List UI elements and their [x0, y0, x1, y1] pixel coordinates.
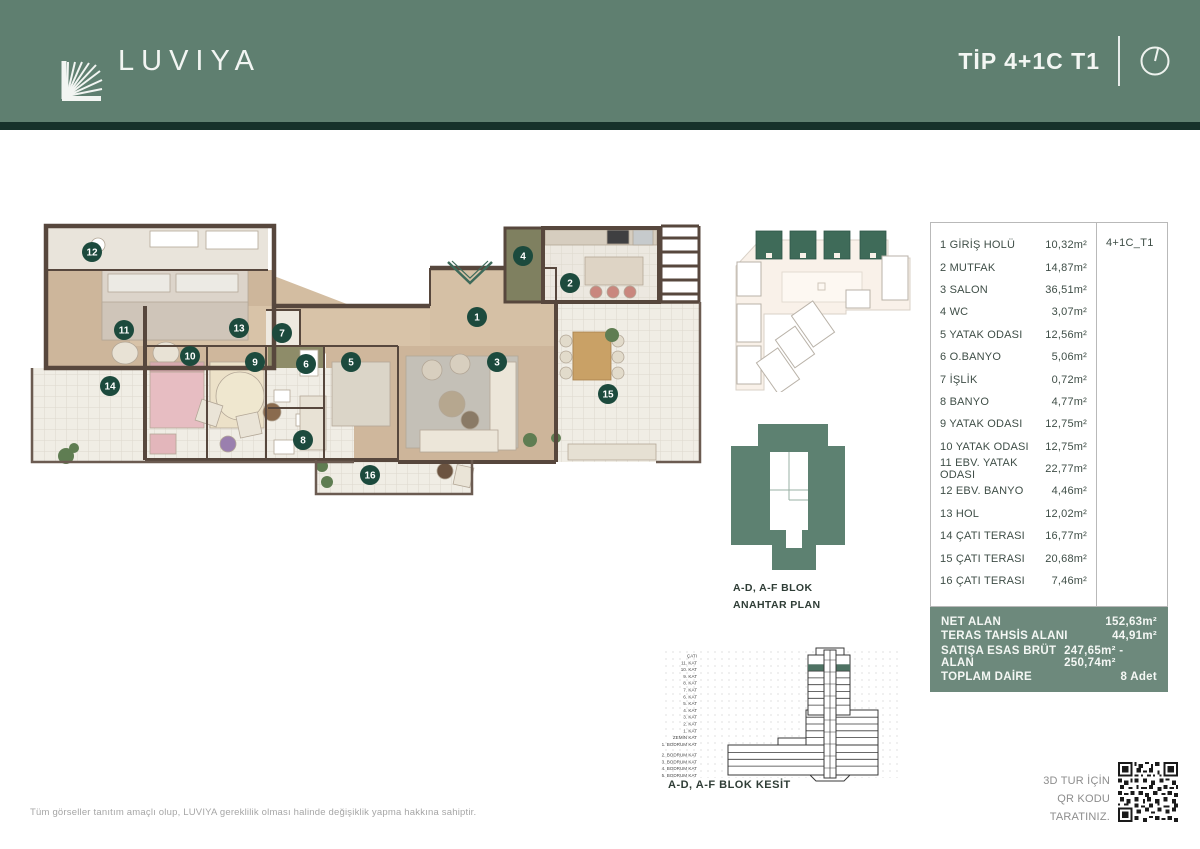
- svg-text:5: 5: [348, 358, 354, 369]
- room-area: 12,56m²: [1045, 329, 1087, 341]
- footer-disclaimer: Tüm görseller tanıtım amaçlı olup, LUVIY…: [30, 807, 476, 818]
- floor-plan-drawing: 1 2 3 4 5 6 7 8 9 10 11 12 13 14 15 16: [18, 198, 708, 518]
- table-row: 10 YATAK ODASI12,75m²: [931, 436, 1096, 458]
- room-label: 1 GİRİŞ HOLÜ: [940, 239, 1015, 251]
- room-area: 4,46m²: [1052, 485, 1087, 497]
- table-row: 11 EBV. YATAK ODASI22,77m²: [931, 458, 1096, 480]
- room-area: 0,72m²: [1052, 374, 1087, 386]
- svg-text:4. KAT: 4. KAT: [683, 708, 697, 713]
- summary-label: NET ALAN: [941, 616, 1001, 628]
- room-area: 4,77m²: [1052, 396, 1087, 408]
- svg-text:4. BODRUM KAT: 4. BODRUM KAT: [662, 766, 698, 771]
- table-row: 1 GİRİŞ HOLÜ10,32m²: [931, 234, 1096, 256]
- svg-text:15: 15: [602, 390, 614, 401]
- room-marker: 11: [114, 320, 134, 340]
- svg-text:8. KAT: 8. KAT: [683, 681, 697, 686]
- room-marker: 2: [560, 273, 580, 293]
- summary-row: TOPLAM DAİRE8 Adet: [941, 671, 1157, 683]
- unit-code: 4+1C_T1: [1097, 223, 1167, 606]
- summary-value: 44,91m²: [1112, 630, 1157, 642]
- table-row: 13 HOL12,02m²: [931, 503, 1096, 525]
- room-label: 6 O.BANYO: [940, 351, 1001, 363]
- room-label: 14 ÇATI TERASI: [940, 530, 1025, 542]
- svg-text:14: 14: [104, 382, 116, 393]
- room-label: 4 WC: [940, 306, 968, 318]
- room-label: 13 HOL: [940, 508, 979, 520]
- room-marker: 12: [82, 242, 102, 262]
- room-area: 20,68m²: [1045, 553, 1087, 565]
- section-caption: A-D, A-F BLOK KESİT: [668, 779, 791, 791]
- svg-text:3. KAT: 3. KAT: [683, 715, 697, 720]
- summary-label: TERAS TAHSİS ALANI: [941, 630, 1068, 642]
- table-row: 8 BANYO4,77m²: [931, 391, 1096, 413]
- room-area: 5,06m²: [1052, 351, 1087, 363]
- room-marker: 16: [360, 465, 380, 485]
- table-row: 2 MUTFAK14,87m²: [931, 256, 1096, 278]
- summary-block: NET ALAN152,63m² TERAS TAHSİS ALANI44,91…: [930, 607, 1168, 692]
- summary-row: TERAS TAHSİS ALANI44,91m²: [941, 630, 1157, 642]
- room-label: 11 EBV. YATAK ODASI: [940, 457, 1045, 481]
- room-marker: 4: [513, 246, 533, 266]
- svg-text:8: 8: [300, 436, 306, 447]
- svg-text:9. KAT: 9. KAT: [683, 674, 697, 679]
- balcony-railing: [661, 226, 699, 302]
- summary-label: SATIŞA ESAS BRÜT ALAN: [941, 645, 1064, 669]
- section-drawing: ÇATI 11. KAT 10. KAT 9. KAT 8. KAT 7. KA…: [655, 643, 905, 795]
- room-area: 3,07m²: [1052, 306, 1087, 318]
- room-marker: 1: [467, 307, 487, 327]
- svg-text:11. KAT: 11. KAT: [681, 660, 697, 665]
- svg-text:2. KAT: 2. KAT: [683, 722, 697, 727]
- room-marker: 15: [598, 384, 618, 404]
- key-plan-caption-line1: A-D, A-F BLOK: [733, 580, 820, 597]
- qr-code: [1118, 762, 1178, 822]
- svg-text:10. KAT: 10. KAT: [681, 667, 697, 672]
- room-marker: 5: [341, 352, 361, 372]
- room-area: 36,51m²: [1045, 284, 1087, 296]
- brand-name: LUVIYA: [118, 0, 261, 122]
- room-marker: 10: [180, 346, 200, 366]
- room-area: 12,75m²: [1045, 418, 1087, 430]
- qr-instruction: 3D TUR İÇİN QR KODU TARATINIZ.: [1000, 772, 1110, 826]
- header-accent-strip: [0, 122, 1200, 130]
- svg-text:9: 9: [252, 358, 258, 369]
- table-row: 7 İŞLİK0,72m²: [931, 368, 1096, 390]
- qr-instruction-line1: 3D TUR İÇİN: [1000, 772, 1110, 790]
- room-label: 16 ÇATI TERASI: [940, 575, 1025, 587]
- table-row: 16 ÇATI TERASI7,46m²: [931, 570, 1096, 592]
- table-row: 5 YATAK ODASI12,56m²: [931, 324, 1096, 346]
- header-divider: [1118, 36, 1120, 86]
- svg-text:3: 3: [494, 358, 500, 369]
- page-title: TİP 4+1C T1: [958, 48, 1100, 75]
- room-label: 9 YATAK ODASI: [940, 418, 1022, 430]
- table-row: 4 WC3,07m²: [931, 301, 1096, 323]
- room-area: 16,77m²: [1045, 530, 1087, 542]
- svg-text:16: 16: [364, 471, 376, 482]
- svg-text:4: 4: [520, 252, 526, 263]
- summary-value: 152,63m²: [1105, 616, 1157, 628]
- room-label: 12 EBV. BANYO: [940, 485, 1024, 497]
- room-label: 3 SALON: [940, 284, 988, 296]
- room-list: 1 GİRİŞ HOLÜ10,32m² 2 MUTFAK14,87m² 3 SA…: [931, 223, 1097, 606]
- room-marker: 6: [296, 354, 316, 374]
- table-row: 9 YATAK ODASI12,75m²: [931, 413, 1096, 435]
- svg-text:1. KAT: 1. KAT: [683, 728, 697, 733]
- room-marker: 14: [100, 376, 120, 396]
- svg-text:10: 10: [184, 352, 196, 363]
- table-row: 15 ÇATI TERASI20,68m²: [931, 547, 1096, 569]
- table-row: 6 O.BANYO5,06m²: [931, 346, 1096, 368]
- room-label: 10 YATAK ODASI: [940, 441, 1029, 453]
- room-label: 8 BANYO: [940, 396, 989, 408]
- room-label: 7 İŞLİK: [940, 374, 977, 386]
- room-label: 2 MUTFAK: [940, 262, 995, 274]
- room-marker: 7: [272, 323, 292, 343]
- room-area: 10,32m²: [1045, 239, 1087, 251]
- svg-text:7. KAT: 7. KAT: [683, 688, 697, 693]
- room-marker: 8: [293, 430, 313, 450]
- svg-text:6: 6: [303, 360, 309, 371]
- svg-text:13: 13: [233, 324, 245, 335]
- table-row: 12 EBV. BANYO4,46m²: [931, 480, 1096, 502]
- summary-label: TOPLAM DAİRE: [941, 671, 1032, 683]
- room-marker: 9: [245, 352, 265, 372]
- svg-text:1: 1: [474, 313, 480, 324]
- summary-row: SATIŞA ESAS BRÜT ALAN247,65m² - 250,74m²: [941, 645, 1157, 669]
- luviya-logo-icon: [56, 56, 104, 104]
- header: LUVIYA TİP 4+1C T1: [0, 0, 1200, 122]
- room-area-table: 1 GİRİŞ HOLÜ10,32m² 2 MUTFAK14,87m² 3 SA…: [930, 222, 1168, 607]
- svg-text:5. KAT: 5. KAT: [683, 701, 697, 706]
- svg-text:1. BODRUM KAT: 1. BODRUM KAT: [662, 742, 698, 747]
- north-indicator-icon: [1138, 44, 1172, 78]
- svg-text:11: 11: [119, 326, 130, 337]
- room-marker: 13: [229, 318, 249, 338]
- summary-value: 8 Adet: [1120, 671, 1157, 683]
- brochure-page: LUVIYA TİP 4+1C T1: [0, 0, 1200, 849]
- svg-text:12: 12: [86, 248, 98, 259]
- svg-text:6. KAT: 6. KAT: [683, 694, 697, 699]
- summary-value: 247,65m² - 250,74m²: [1064, 645, 1157, 669]
- room-area: 7,46m²: [1052, 575, 1087, 587]
- room-area: 12,02m²: [1045, 508, 1087, 520]
- room-marker: 3: [487, 352, 507, 372]
- key-plan-caption: A-D, A-F BLOK ANAHTAR PLAN: [733, 580, 820, 614]
- svg-text:ÇATI: ÇATI: [687, 654, 697, 659]
- room-area: 14,87m²: [1045, 262, 1087, 274]
- svg-text:2: 2: [567, 279, 573, 290]
- svg-text:2. BODRUM KAT: 2. BODRUM KAT: [662, 753, 698, 758]
- room-label: 5 YATAK ODASI: [940, 329, 1022, 341]
- table-row: 3 SALON36,51m²: [931, 279, 1096, 301]
- block-key-plan: [725, 420, 850, 575]
- summary-row: NET ALAN152,63m²: [941, 616, 1157, 628]
- key-plan-caption-line2: ANAHTAR PLAN: [733, 597, 820, 614]
- svg-text:3. BODRUM KAT: 3. BODRUM KAT: [662, 759, 698, 764]
- header-right: TİP 4+1C T1: [958, 0, 1172, 122]
- svg-text:5. BODRUM KAT: 5. BODRUM KAT: [662, 773, 698, 778]
- site-key-plan: [728, 214, 918, 392]
- room-area: 12,75m²: [1045, 441, 1087, 453]
- qr-instruction-line2: QR KODU TARATINIZ.: [1000, 790, 1110, 826]
- svg-text:7: 7: [279, 329, 285, 340]
- room-label: 15 ÇATI TERASI: [940, 553, 1025, 565]
- svg-text:ZEMİN KAT: ZEMİN KAT: [673, 734, 697, 740]
- table-row: 14 ÇATI TERASI16,77m²: [931, 525, 1096, 547]
- room-area: 22,77m²: [1045, 463, 1087, 475]
